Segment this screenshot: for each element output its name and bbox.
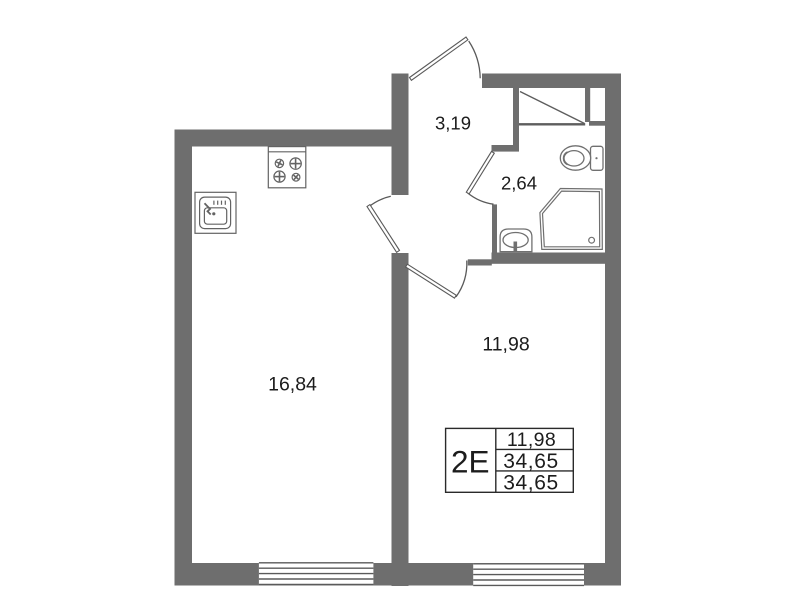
- svg-text:34,65: 34,65: [503, 450, 559, 473]
- svg-text:3,19: 3,19: [435, 112, 471, 133]
- svg-text:16,84: 16,84: [268, 374, 317, 396]
- svg-text:34,65: 34,65: [503, 471, 559, 494]
- svg-text:2,64: 2,64: [501, 173, 537, 194]
- svg-text:11,98: 11,98: [482, 334, 529, 356]
- svg-text:2E: 2E: [451, 443, 490, 479]
- svg-text:11,98: 11,98: [507, 429, 556, 451]
